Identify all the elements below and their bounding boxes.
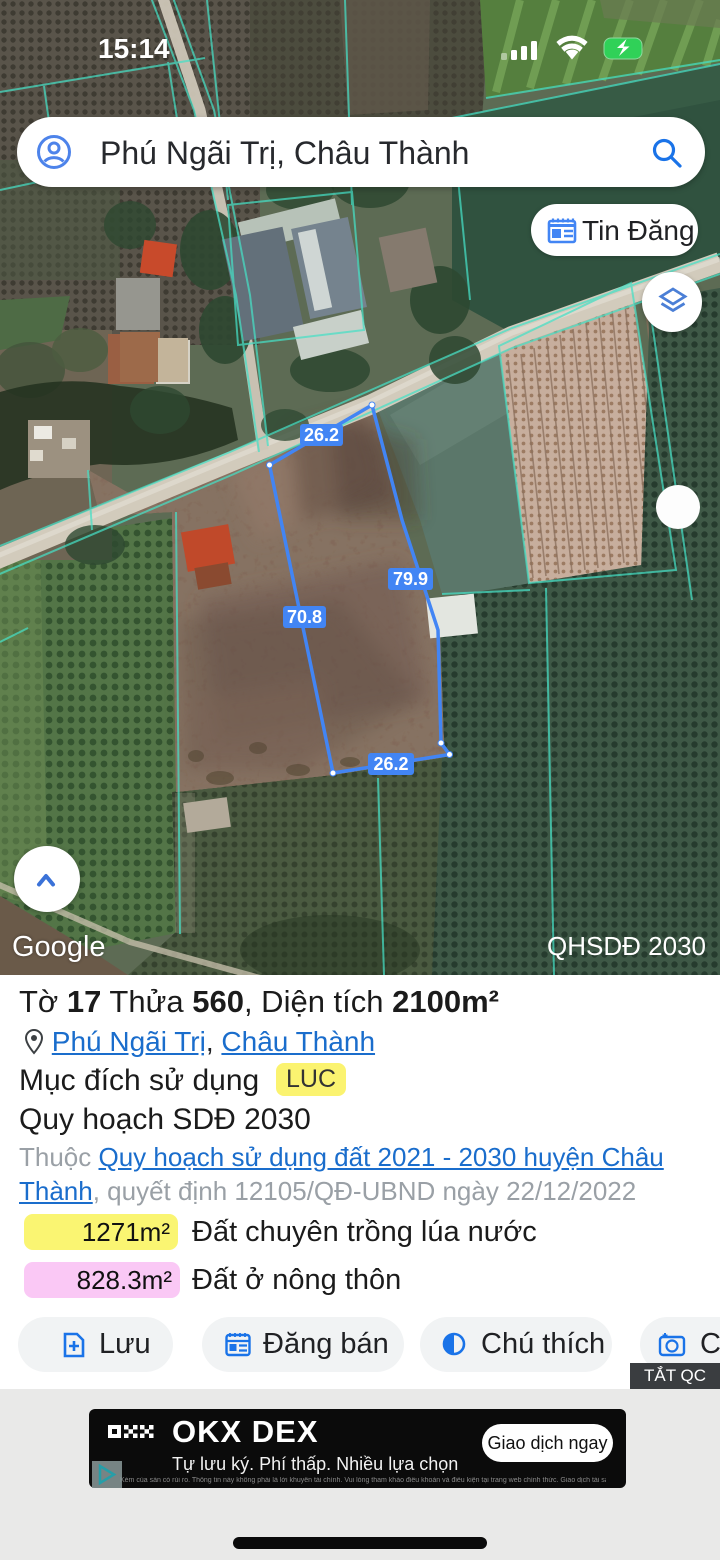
svg-text:79.9: 79.9 bbox=[393, 569, 428, 589]
svg-text:26.2: 26.2 bbox=[304, 425, 339, 445]
svg-text:Google: Google bbox=[12, 931, 106, 963]
svg-text:70.8: 70.8 bbox=[287, 607, 322, 627]
svg-text:QHSDĐ 2030: QHSDĐ 2030 bbox=[547, 931, 706, 961]
svg-text:26.2: 26.2 bbox=[373, 754, 408, 774]
